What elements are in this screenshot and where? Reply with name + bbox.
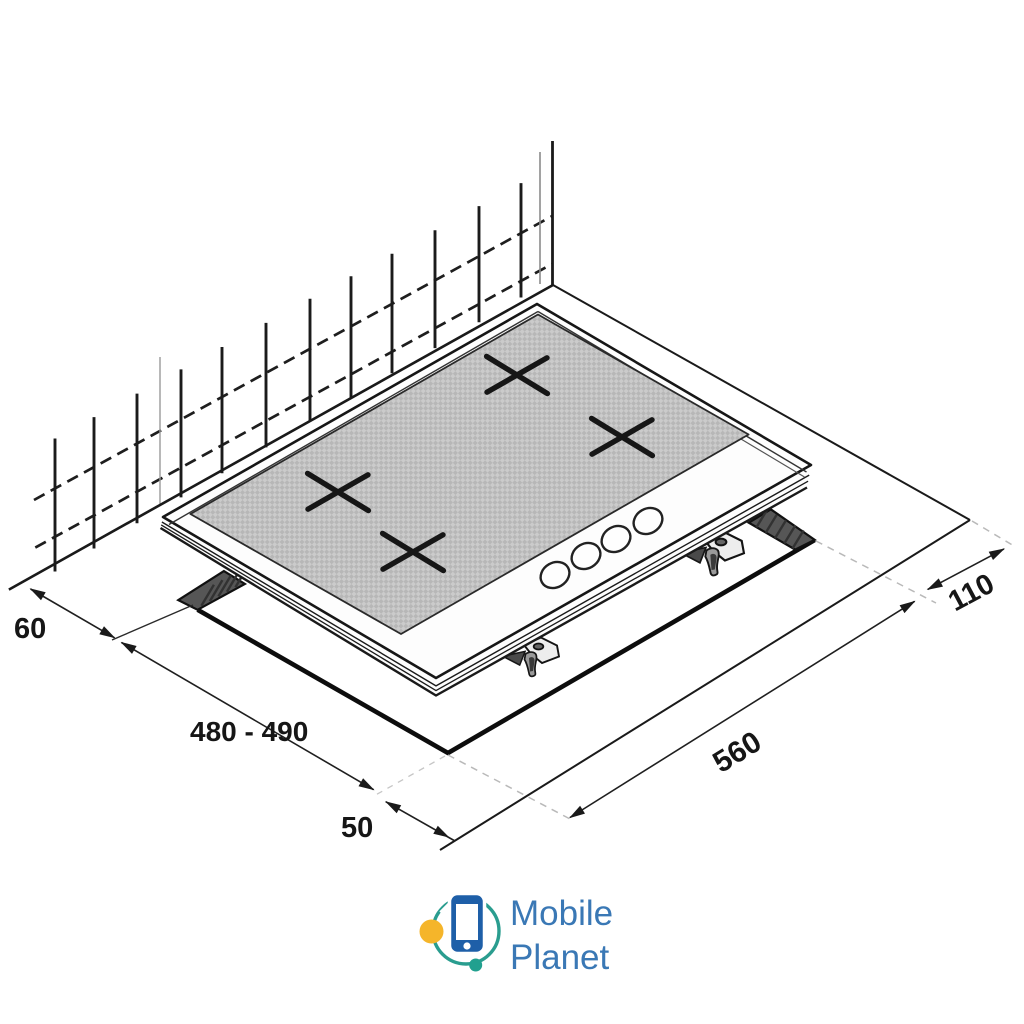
svg-text:50: 50 <box>341 812 373 844</box>
svg-text:Planet: Planet <box>510 938 610 977</box>
svg-text:480 - 490: 480 - 490 <box>190 716 308 747</box>
svg-text:60: 60 <box>14 613 46 645</box>
svg-text:Mobile: Mobile <box>510 894 613 933</box>
